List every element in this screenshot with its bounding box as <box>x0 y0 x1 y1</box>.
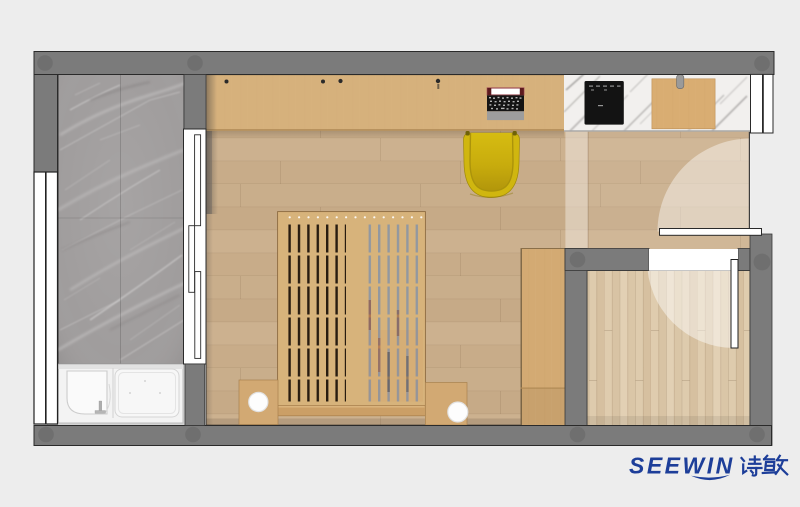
svg-text:SEEWIN: SEEWIN <box>629 453 735 479</box>
